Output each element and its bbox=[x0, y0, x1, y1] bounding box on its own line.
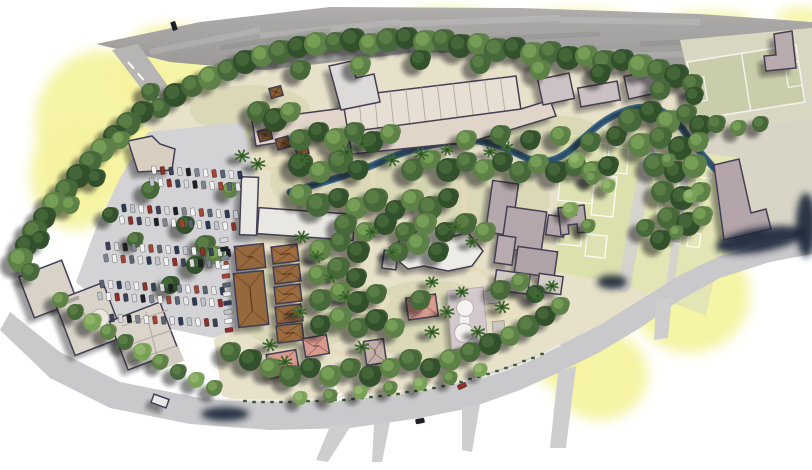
tree-highlight bbox=[236, 52, 250, 66]
palm-crown bbox=[476, 330, 479, 333]
parked-car bbox=[200, 247, 205, 256]
tree-highlight bbox=[311, 163, 324, 176]
parked-car bbox=[138, 256, 143, 265]
tree-highlight bbox=[222, 344, 234, 356]
palm-crown bbox=[300, 158, 303, 161]
tree-highlight bbox=[331, 309, 344, 322]
parked-car bbox=[197, 220, 202, 229]
tree-highlight bbox=[492, 282, 504, 294]
tree-highlight bbox=[469, 35, 482, 48]
parked-car bbox=[105, 242, 110, 251]
tree-highlight bbox=[253, 47, 266, 60]
tree-highlight bbox=[472, 56, 484, 68]
hedge bbox=[513, 364, 517, 366]
parked-car bbox=[166, 179, 171, 188]
tree-highlight bbox=[519, 317, 532, 330]
tree-highlight bbox=[69, 305, 78, 314]
road-stub bbox=[372, 422, 390, 462]
tree-highlight bbox=[310, 124, 322, 136]
tree-highlight bbox=[347, 199, 360, 212]
tree-highlight bbox=[63, 198, 73, 208]
parked-car bbox=[152, 316, 157, 325]
parked-car bbox=[145, 217, 150, 226]
parked-car bbox=[206, 260, 211, 269]
tree-highlight bbox=[659, 112, 673, 126]
tree-highlight bbox=[600, 158, 612, 170]
tree-highlight bbox=[329, 259, 342, 272]
tree-highlight bbox=[350, 320, 362, 332]
parked-car bbox=[208, 248, 213, 257]
palm-crown bbox=[445, 148, 448, 151]
tree-highlight bbox=[35, 209, 48, 222]
parked-car bbox=[200, 298, 205, 307]
parked-car bbox=[199, 208, 204, 217]
parked-car bbox=[175, 179, 180, 188]
building-village-hall-4 bbox=[494, 235, 516, 265]
hedge bbox=[540, 353, 544, 355]
tree-highlight bbox=[678, 106, 690, 118]
parked-car bbox=[177, 284, 182, 293]
parked-car bbox=[123, 293, 128, 302]
tree-highlight bbox=[361, 35, 374, 48]
tree-highlight bbox=[652, 232, 664, 244]
building-bar-building-vertical bbox=[239, 177, 258, 236]
tree-highlight bbox=[352, 58, 364, 70]
parked-car bbox=[165, 245, 170, 254]
palm-crown bbox=[370, 230, 373, 233]
tree-highlight bbox=[302, 360, 314, 372]
hedge bbox=[252, 401, 256, 403]
tree-highlight bbox=[462, 344, 474, 356]
parked-car bbox=[135, 315, 140, 324]
tree-highlight bbox=[382, 360, 394, 372]
parked-car bbox=[121, 204, 126, 213]
parked-car bbox=[97, 292, 102, 301]
road-car bbox=[415, 418, 424, 424]
tree-highlight bbox=[312, 317, 324, 329]
tree-highlight bbox=[522, 132, 534, 144]
tree-highlight bbox=[367, 311, 380, 324]
tree-highlight bbox=[691, 117, 704, 130]
tree-highlight bbox=[687, 89, 697, 99]
parked-car bbox=[237, 171, 242, 180]
parked-car bbox=[220, 170, 225, 179]
parked-car bbox=[188, 220, 193, 229]
parked-car bbox=[177, 167, 182, 176]
tree-highlight bbox=[361, 367, 374, 380]
parked-car bbox=[224, 210, 229, 219]
parked-car bbox=[189, 259, 194, 268]
tree-highlight bbox=[282, 104, 294, 116]
site-plan-page bbox=[0, 0, 812, 470]
tree-highlight bbox=[652, 82, 664, 94]
parked-car bbox=[149, 295, 154, 304]
parked-car bbox=[103, 254, 108, 263]
parked-car bbox=[140, 244, 145, 253]
tree-highlight bbox=[492, 127, 504, 139]
parked-car bbox=[225, 327, 234, 332]
parked-car bbox=[140, 294, 145, 303]
tree-highlight bbox=[690, 134, 702, 146]
parked-car bbox=[151, 166, 156, 175]
tree-highlight bbox=[709, 117, 719, 127]
tree-highlight bbox=[102, 325, 111, 334]
tree-highlight bbox=[547, 163, 560, 176]
parked-car bbox=[223, 300, 232, 305]
parked-car bbox=[168, 284, 173, 293]
parked-car bbox=[166, 296, 171, 305]
tree-highlight bbox=[494, 154, 506, 166]
tree-highlight bbox=[416, 32, 430, 46]
navy-shadow bbox=[597, 275, 627, 289]
hedge bbox=[504, 367, 508, 369]
hedge bbox=[432, 387, 436, 389]
tree-highlight bbox=[403, 191, 416, 204]
tree-highlight bbox=[523, 44, 537, 58]
parked-car bbox=[114, 293, 119, 302]
tree-highlight bbox=[113, 133, 123, 143]
palm-crown bbox=[550, 284, 553, 287]
tree-highlight bbox=[330, 190, 342, 202]
parked-car bbox=[207, 209, 212, 218]
tree-highlight bbox=[475, 364, 483, 372]
tree-highlight bbox=[415, 378, 423, 386]
building-rowhouse-west-2 bbox=[233, 271, 268, 328]
tree-highlight bbox=[89, 171, 99, 181]
tree-highlight bbox=[385, 382, 393, 390]
tree-highlight bbox=[327, 34, 339, 46]
parked-car bbox=[138, 205, 143, 214]
tree-highlight bbox=[166, 85, 180, 99]
tree-highlight bbox=[376, 215, 389, 228]
parked-car bbox=[134, 282, 139, 291]
parked-car bbox=[179, 219, 184, 228]
parked-car bbox=[109, 314, 114, 323]
tree-highlight bbox=[532, 62, 544, 74]
palm-crown bbox=[390, 250, 393, 253]
tree-highlight bbox=[513, 275, 523, 285]
palm-crown bbox=[298, 310, 301, 313]
tree-highlight bbox=[23, 265, 33, 275]
parked-car bbox=[233, 210, 238, 219]
tree-highlight bbox=[663, 154, 671, 162]
tree-highlight bbox=[172, 365, 181, 374]
palm-crown bbox=[390, 158, 393, 161]
parked-car bbox=[156, 206, 161, 215]
palm-crown bbox=[419, 152, 422, 155]
parked-car bbox=[149, 178, 154, 187]
parked-car bbox=[183, 297, 188, 306]
parked-car bbox=[192, 180, 197, 189]
parked-car bbox=[229, 170, 234, 179]
parked-car bbox=[106, 292, 111, 301]
tree-highlight bbox=[397, 29, 410, 42]
parked-car bbox=[209, 298, 214, 307]
tree-highlight bbox=[641, 103, 654, 116]
tree-highlight bbox=[481, 335, 494, 348]
tree-highlight bbox=[537, 308, 549, 320]
parked-car bbox=[108, 280, 113, 289]
palm-crown bbox=[345, 150, 348, 153]
tree-highlight bbox=[541, 43, 554, 56]
tree-highlight bbox=[54, 293, 63, 302]
parked-car bbox=[183, 246, 188, 255]
tree-highlight bbox=[307, 34, 321, 48]
parked-car bbox=[195, 318, 200, 327]
tree-highlight bbox=[348, 270, 360, 282]
parked-car bbox=[160, 166, 165, 175]
parked-car bbox=[151, 283, 156, 292]
tree-highlight bbox=[671, 138, 685, 152]
tree-highlight bbox=[183, 77, 196, 90]
tree-highlight bbox=[422, 360, 434, 372]
tree-highlight bbox=[430, 244, 442, 256]
building-rowhouse-east-1 bbox=[271, 244, 299, 264]
tree-highlight bbox=[694, 208, 706, 220]
tree-highlight bbox=[382, 126, 394, 138]
tree-highlight bbox=[434, 31, 447, 44]
parked-car bbox=[132, 294, 137, 303]
parked-car bbox=[220, 237, 229, 242]
tree-highlight bbox=[309, 195, 323, 209]
hedge bbox=[369, 396, 373, 398]
tree-highlight bbox=[439, 160, 453, 174]
tree-highlight bbox=[311, 291, 324, 304]
parked-car bbox=[125, 281, 130, 290]
parked-car bbox=[162, 218, 167, 227]
tree-highlight bbox=[379, 30, 393, 44]
parked-car bbox=[129, 255, 134, 264]
tree-highlight bbox=[505, 39, 518, 52]
parked-car bbox=[119, 216, 124, 225]
tree-highlight bbox=[291, 186, 304, 199]
tree-highlight bbox=[17, 237, 30, 250]
palm-crown bbox=[500, 305, 503, 308]
tree-highlight bbox=[409, 235, 422, 248]
road-stub bbox=[316, 424, 352, 462]
parked-car bbox=[144, 315, 149, 324]
parked-car bbox=[212, 319, 217, 328]
tree-highlight bbox=[552, 128, 564, 140]
hedge bbox=[279, 401, 283, 403]
parked-car bbox=[209, 181, 214, 190]
parked-car bbox=[204, 318, 209, 327]
tree-highlight bbox=[281, 367, 294, 380]
tree-highlight bbox=[85, 315, 95, 325]
tree-highlight bbox=[631, 135, 645, 149]
palm-crown bbox=[240, 154, 243, 157]
tree-highlight bbox=[104, 208, 113, 217]
parked-car bbox=[175, 296, 180, 305]
parked-car bbox=[114, 242, 119, 251]
parked-car bbox=[130, 204, 135, 213]
parked-car bbox=[191, 247, 196, 256]
tree-highlight bbox=[754, 117, 763, 126]
parked-car bbox=[158, 178, 163, 187]
parked-car bbox=[186, 168, 191, 177]
parked-car bbox=[221, 264, 230, 269]
parked-car bbox=[184, 180, 189, 189]
parked-car bbox=[173, 207, 178, 216]
parked-car bbox=[116, 281, 121, 290]
tree-highlight bbox=[321, 367, 334, 380]
tree-highlight bbox=[295, 392, 303, 400]
tree-highlight bbox=[685, 156, 699, 170]
tree-highlight bbox=[659, 209, 672, 222]
hedge bbox=[243, 400, 247, 402]
tree-highlight bbox=[350, 162, 362, 174]
parked-car bbox=[171, 219, 176, 228]
tree-highlight bbox=[363, 133, 376, 146]
parked-car bbox=[218, 182, 223, 191]
tree-highlight bbox=[325, 390, 333, 398]
building-rowhouse-east-3 bbox=[274, 284, 302, 304]
parked-car bbox=[211, 169, 216, 178]
hedge bbox=[495, 370, 499, 372]
parked-car bbox=[155, 257, 160, 266]
palm-crown bbox=[505, 145, 508, 148]
tree-highlight bbox=[368, 286, 380, 298]
tree-highlight bbox=[310, 267, 322, 279]
tree-highlight bbox=[262, 360, 274, 372]
tree-highlight bbox=[445, 372, 453, 380]
tree-highlight bbox=[421, 198, 435, 212]
parked-car bbox=[216, 209, 221, 218]
tree-highlight bbox=[638, 221, 648, 231]
tree-highlight bbox=[343, 30, 357, 44]
tree-highlight bbox=[129, 233, 138, 242]
tree-highlight bbox=[684, 76, 696, 88]
parked-car bbox=[159, 283, 164, 292]
building-rowhouse-west-1 bbox=[234, 244, 265, 271]
tree-highlight bbox=[653, 183, 666, 196]
parked-car bbox=[120, 255, 125, 264]
hedge bbox=[396, 393, 400, 395]
tree-highlight bbox=[451, 36, 465, 50]
tree-highlight bbox=[45, 194, 59, 208]
parked-car bbox=[169, 317, 174, 326]
parked-car bbox=[185, 285, 190, 294]
tree-highlight bbox=[241, 351, 254, 364]
parked-car bbox=[194, 285, 199, 294]
tree-highlight bbox=[366, 190, 380, 204]
parked-car bbox=[205, 221, 210, 230]
parked-car bbox=[142, 282, 147, 291]
tree-highlight bbox=[154, 355, 163, 364]
site-plan-canvas bbox=[0, 0, 812, 470]
parked-car bbox=[168, 167, 173, 176]
tree-highlight bbox=[582, 134, 594, 146]
hedge bbox=[261, 401, 265, 403]
tree-highlight bbox=[332, 284, 344, 296]
parked-car bbox=[223, 291, 232, 296]
tree-highlight bbox=[685, 190, 693, 198]
tree-highlight bbox=[592, 66, 604, 78]
parked-car bbox=[164, 206, 169, 215]
parked-car bbox=[154, 218, 159, 227]
tree-highlight bbox=[190, 373, 199, 382]
parked-car bbox=[146, 256, 151, 265]
tree-highlight bbox=[511, 163, 524, 176]
parked-car bbox=[202, 286, 207, 295]
palm-crown bbox=[488, 150, 491, 153]
tree-highlight bbox=[386, 320, 398, 332]
parked-car bbox=[148, 244, 153, 253]
tree-highlight bbox=[249, 103, 262, 116]
tree-highlight bbox=[11, 250, 25, 264]
tree-highlight bbox=[412, 292, 424, 304]
hedge bbox=[531, 357, 535, 359]
tree-highlight bbox=[201, 68, 215, 82]
palm-crown bbox=[329, 275, 332, 278]
palm-crown bbox=[360, 142, 363, 145]
tree-highlight bbox=[197, 237, 209, 249]
building-rowhouse-east-5 bbox=[276, 323, 304, 343]
parked-car bbox=[221, 255, 230, 260]
palm-crown bbox=[300, 235, 303, 238]
palm-crown bbox=[453, 225, 456, 228]
hedge bbox=[459, 381, 463, 383]
palm-crown bbox=[344, 295, 347, 298]
parked-car bbox=[222, 282, 231, 287]
tree-highlight bbox=[416, 215, 429, 228]
parked-car bbox=[214, 221, 219, 230]
tree-highlight bbox=[631, 56, 645, 70]
tree-highlight bbox=[327, 130, 341, 144]
parked-car bbox=[128, 216, 133, 225]
palm-crown bbox=[268, 343, 271, 346]
tree-highlight bbox=[401, 351, 414, 364]
tree-highlight bbox=[57, 181, 70, 194]
parked-car bbox=[187, 317, 192, 326]
tree-highlight bbox=[487, 40, 501, 54]
tree-highlight bbox=[349, 243, 362, 256]
tree-highlight bbox=[81, 153, 94, 166]
parked-car bbox=[190, 208, 195, 217]
parked-car bbox=[181, 258, 186, 267]
tree-highlight bbox=[458, 132, 470, 144]
tree-highlight bbox=[119, 335, 128, 344]
tree-highlight bbox=[143, 85, 153, 95]
palm-crown bbox=[470, 240, 473, 243]
hedge bbox=[306, 400, 310, 402]
parked-car bbox=[178, 317, 183, 326]
parked-car bbox=[172, 258, 177, 267]
tree-highlight bbox=[646, 155, 660, 169]
tree-highlight bbox=[412, 52, 424, 64]
building-kiosk-4 bbox=[269, 86, 283, 99]
parked-car bbox=[222, 273, 231, 278]
parked-car bbox=[163, 257, 168, 266]
palm-crown bbox=[430, 330, 433, 333]
parked-car bbox=[181, 207, 186, 216]
hedge bbox=[522, 360, 526, 362]
tree-highlight bbox=[342, 360, 354, 372]
parked-car bbox=[136, 217, 141, 226]
parked-car bbox=[224, 318, 233, 323]
tree-highlight bbox=[530, 156, 542, 168]
parked-car bbox=[126, 315, 131, 324]
tree-highlight bbox=[583, 220, 591, 228]
tree-highlight bbox=[587, 172, 595, 180]
parked-car bbox=[122, 243, 127, 252]
parked-car bbox=[211, 286, 216, 295]
palm-crown bbox=[360, 345, 363, 348]
palm-crown bbox=[460, 290, 463, 293]
parked-car bbox=[227, 182, 232, 191]
tree-highlight bbox=[266, 110, 280, 124]
parked-car bbox=[215, 260, 220, 269]
